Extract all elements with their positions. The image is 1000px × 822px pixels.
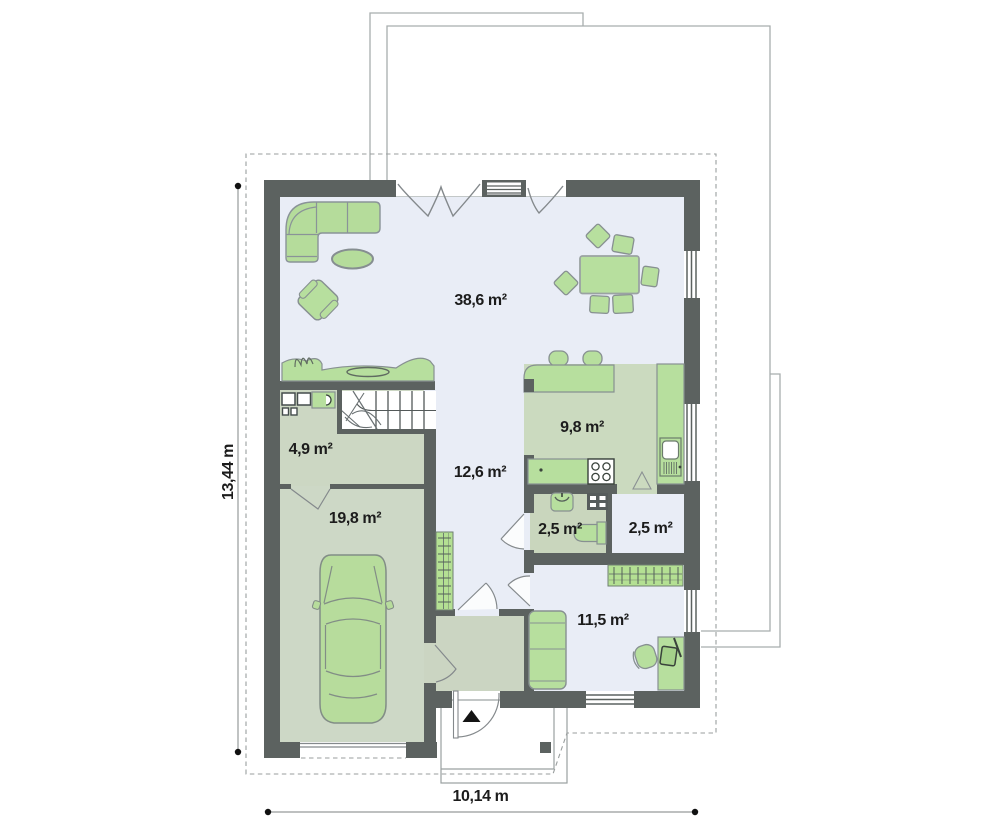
svg-text:4,9 m²: 4,9 m²: [289, 441, 333, 458]
svg-text:12,6 m²: 12,6 m²: [454, 464, 506, 481]
svg-text:9,8 m²: 9,8 m²: [560, 419, 604, 436]
svg-text:38,6 m²: 38,6 m²: [454, 292, 506, 309]
svg-text:2,5 m²: 2,5 m²: [538, 521, 582, 538]
svg-text:13,44 m: 13,44 m: [220, 444, 237, 500]
svg-text:19,8 m²: 19,8 m²: [329, 510, 381, 527]
svg-text:11,5 m²: 11,5 m²: [577, 612, 629, 629]
svg-text:10,14 m: 10,14 m: [453, 788, 509, 805]
svg-text:2,5 m²: 2,5 m²: [629, 520, 673, 537]
